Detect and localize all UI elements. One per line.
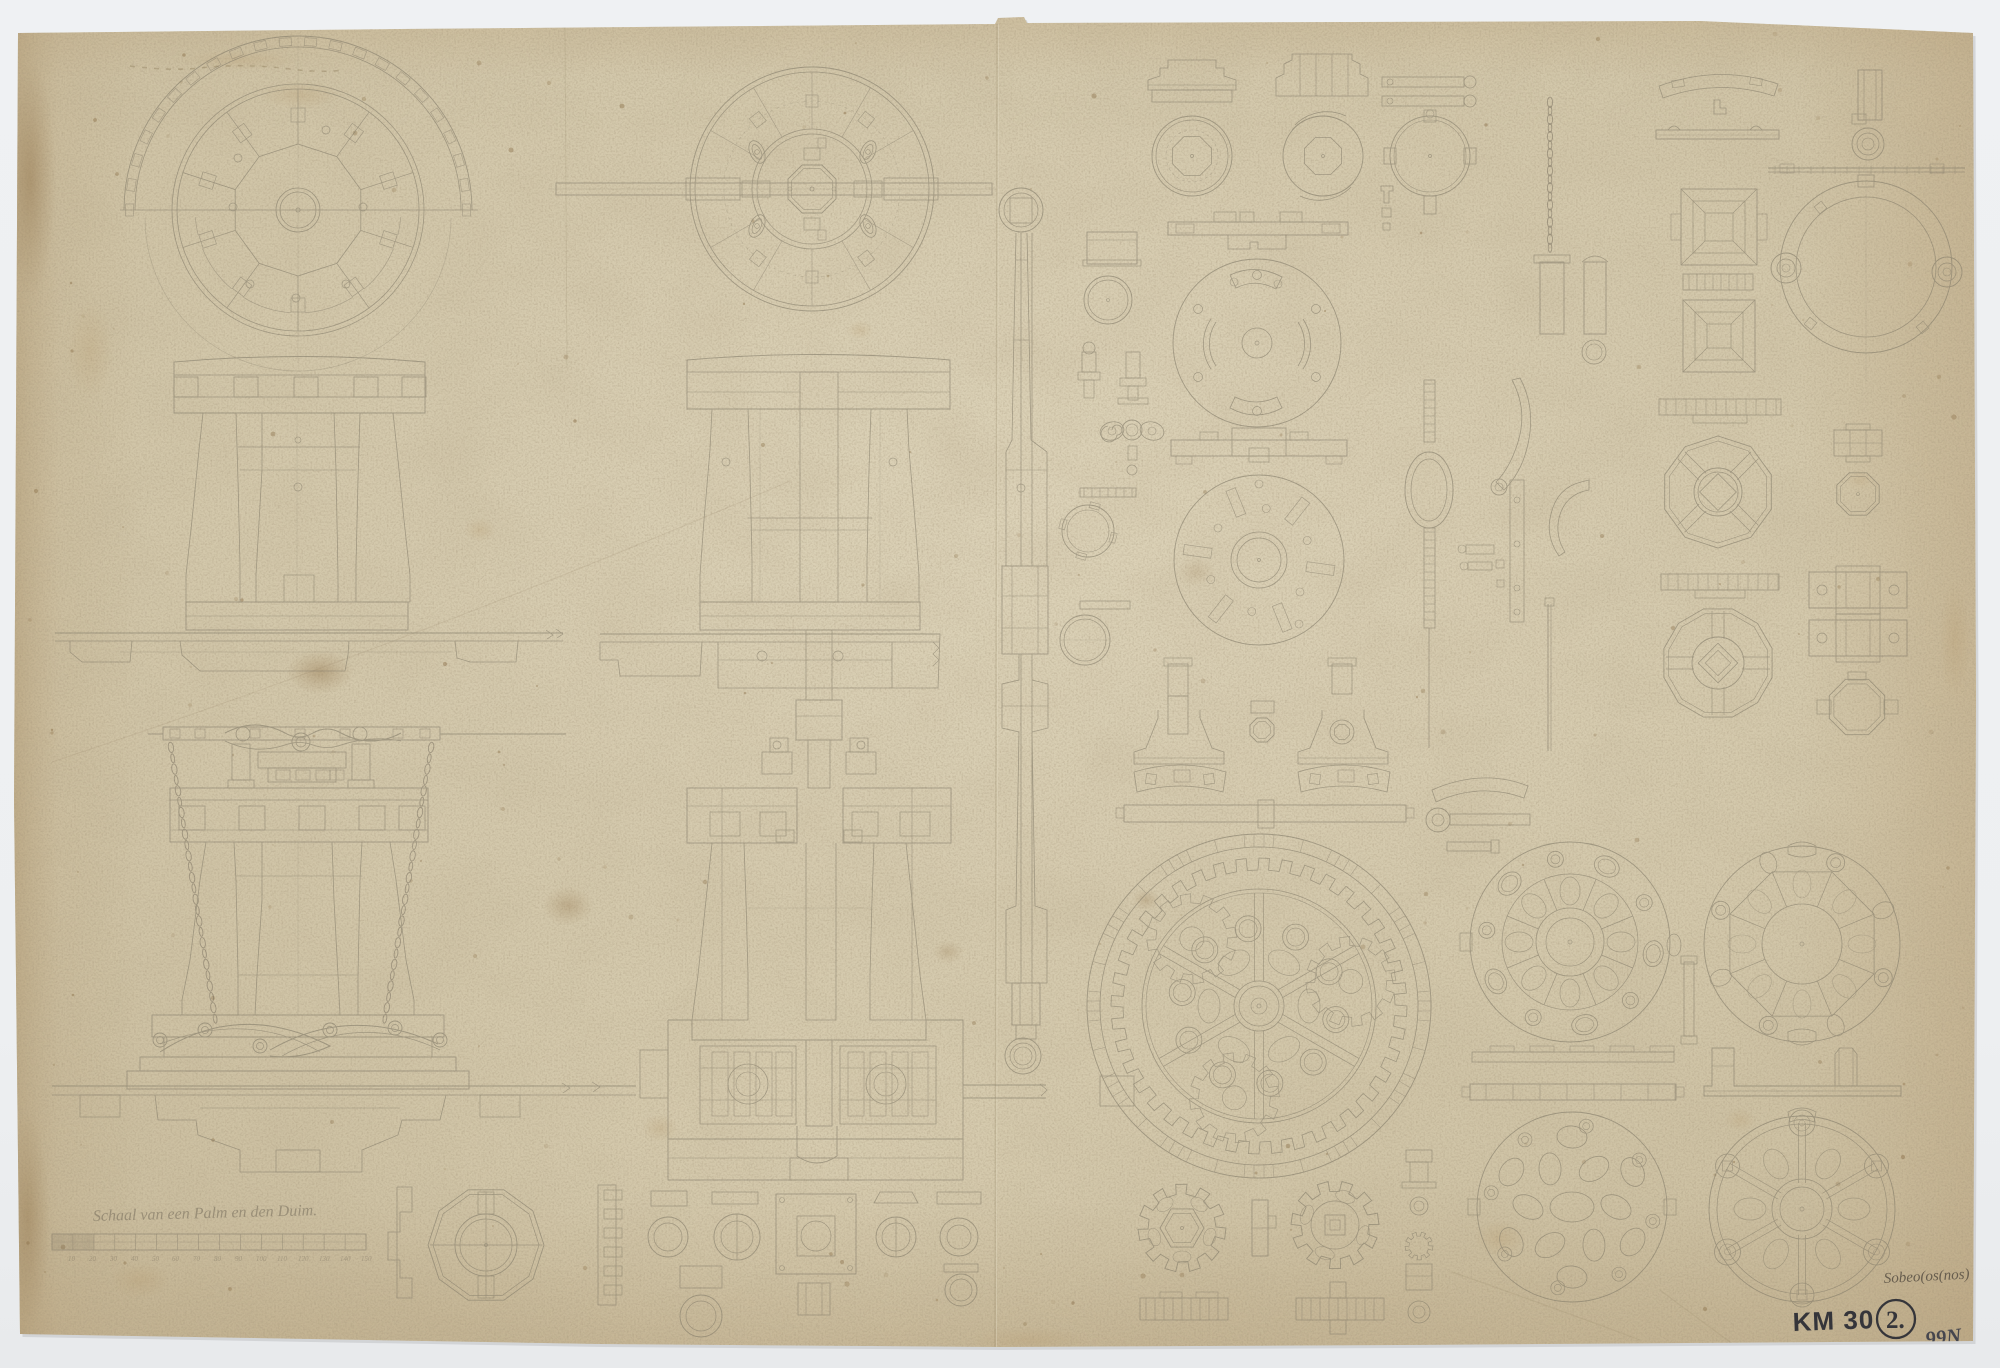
- svg-text:50: 50: [152, 1255, 160, 1263]
- svg-text:60: 60: [172, 1255, 180, 1263]
- svg-text:40: 40: [131, 1255, 139, 1263]
- svg-text:130: 130: [319, 1255, 330, 1263]
- svg-text:140: 140: [340, 1255, 351, 1263]
- svg-text:120: 120: [298, 1255, 309, 1263]
- svg-text:100: 100: [256, 1255, 267, 1263]
- svg-text:90: 90: [235, 1255, 243, 1263]
- svg-text:150: 150: [361, 1255, 372, 1263]
- svg-text:110: 110: [277, 1255, 287, 1263]
- svg-text:80: 80: [214, 1255, 222, 1263]
- svg-text:20: 20: [89, 1255, 97, 1263]
- svg-text:70: 70: [193, 1255, 201, 1263]
- svg-text:KM 30: KM 30: [1792, 1304, 1875, 1337]
- svg-text:2.: 2.: [1886, 1307, 1905, 1334]
- svg-text:10: 10: [68, 1255, 76, 1263]
- svg-text:30: 30: [109, 1255, 118, 1263]
